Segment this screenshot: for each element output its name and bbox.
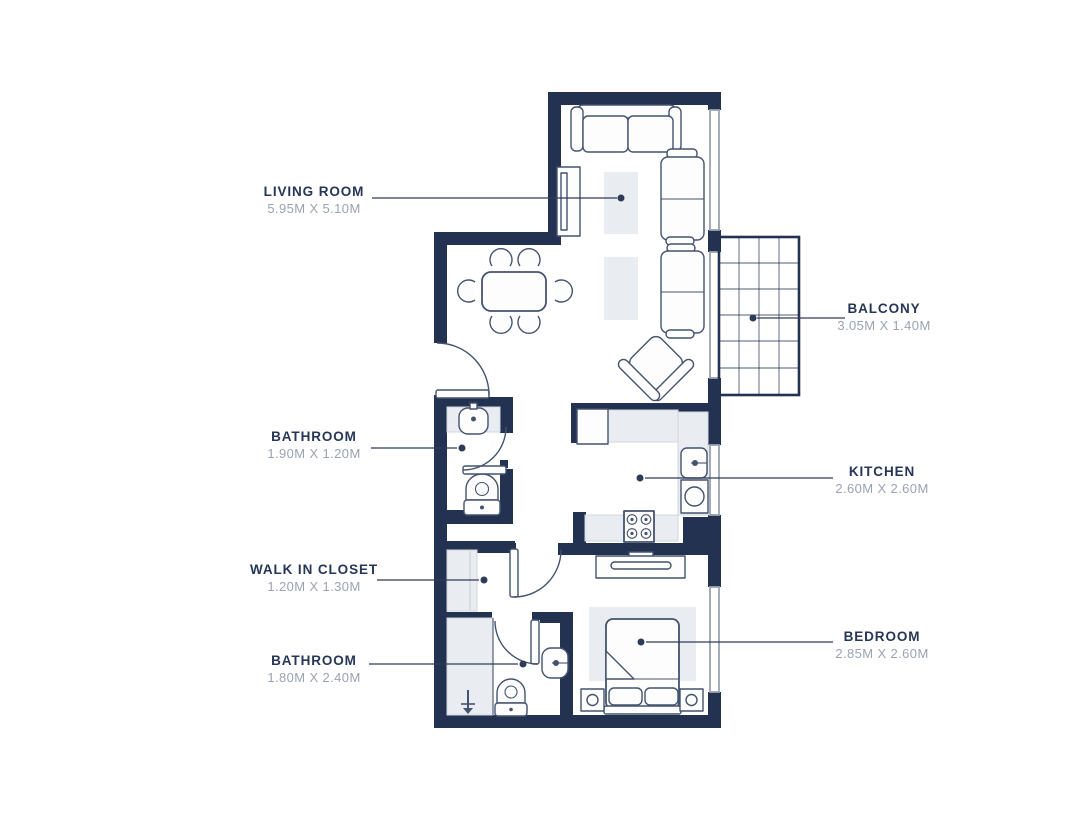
dining-chair-icon xyxy=(518,316,540,333)
kitchen-sink-icon xyxy=(681,448,707,478)
room-label-walk-in-closet: WALK IN CLOSET 1.20M X 1.30M xyxy=(219,562,409,594)
bedroom-window xyxy=(710,587,719,692)
pillow xyxy=(609,688,642,705)
room-label-living-room: LIVING ROOM 5.95M X 5.10M xyxy=(219,184,409,216)
balcony-door-window xyxy=(710,252,719,378)
pillow xyxy=(645,688,678,705)
dining-chair-icon xyxy=(555,280,572,302)
room-name: WALK IN CLOSET xyxy=(219,562,409,577)
sink-icon xyxy=(542,648,568,678)
shower-icon xyxy=(447,618,493,715)
room-dims: 1.90M X 1.20M xyxy=(219,446,409,461)
room-dims: 3.05M X 1.40M xyxy=(789,318,979,333)
room-dims: 2.85M X 2.60M xyxy=(787,646,977,661)
bathroom1-vanity xyxy=(447,403,500,434)
dining-chair-icon xyxy=(458,280,475,302)
kitchen-window xyxy=(710,445,719,515)
room-label-kitchen: KITCHEN 2.60M X 2.60M xyxy=(787,464,977,496)
room-name: BATHROOM xyxy=(219,429,409,444)
fridge-icon xyxy=(577,409,608,444)
bed-icon xyxy=(604,619,681,714)
dresser-icon xyxy=(596,552,685,578)
living-room-rug xyxy=(604,172,638,234)
living-room-window xyxy=(710,110,719,230)
room-name: KITCHEN xyxy=(787,464,977,479)
room-name: LIVING ROOM xyxy=(219,184,409,199)
room-name: BATHROOM xyxy=(219,653,409,668)
room-dims: 2.60M X 2.60M xyxy=(787,481,977,496)
stove-icon xyxy=(624,511,654,542)
room-label-bedroom: BEDROOM 2.85M X 2.60M xyxy=(787,629,977,661)
room-dims: 1.80M X 2.40M xyxy=(219,670,409,685)
floor-plan xyxy=(0,0,1080,839)
room-label-bathroom-2: BATHROOM 1.80M X 2.40M xyxy=(219,653,409,685)
dining-chair-icon xyxy=(490,316,512,333)
room-name: BALCONY xyxy=(789,301,979,316)
tv-console-icon xyxy=(557,167,580,236)
toilet-icon xyxy=(495,679,527,716)
room-label-balcony: BALCONY 3.05M X 1.40M xyxy=(789,301,979,333)
dining-chair-icon xyxy=(518,249,540,266)
hall-door-arc xyxy=(510,549,561,597)
nightstand-icon xyxy=(581,689,604,711)
dining-table-icon xyxy=(458,249,573,334)
floor-plan-canvas: LIVING ROOM 5.95M X 5.10M BALCONY 3.05M … xyxy=(0,0,1080,839)
entry-door-arc xyxy=(436,343,489,398)
washing-machine-icon xyxy=(681,480,708,513)
room-dims: 5.95M X 5.10M xyxy=(219,201,409,216)
bathroom2-door-arc xyxy=(495,620,539,664)
balcony-grid xyxy=(719,237,799,395)
sofa-icon xyxy=(571,105,681,152)
sectional-sofa-icon xyxy=(661,149,704,338)
nightstand-icon xyxy=(680,689,703,711)
room-label-bathroom-1: BATHROOM 1.90M X 1.20M xyxy=(219,429,409,461)
living-room-rug xyxy=(604,257,638,320)
room-name: BEDROOM xyxy=(787,629,977,644)
toilet-icon xyxy=(464,474,500,515)
dining-chair-icon xyxy=(490,249,512,266)
room-dims: 1.20M X 1.30M xyxy=(219,579,409,594)
